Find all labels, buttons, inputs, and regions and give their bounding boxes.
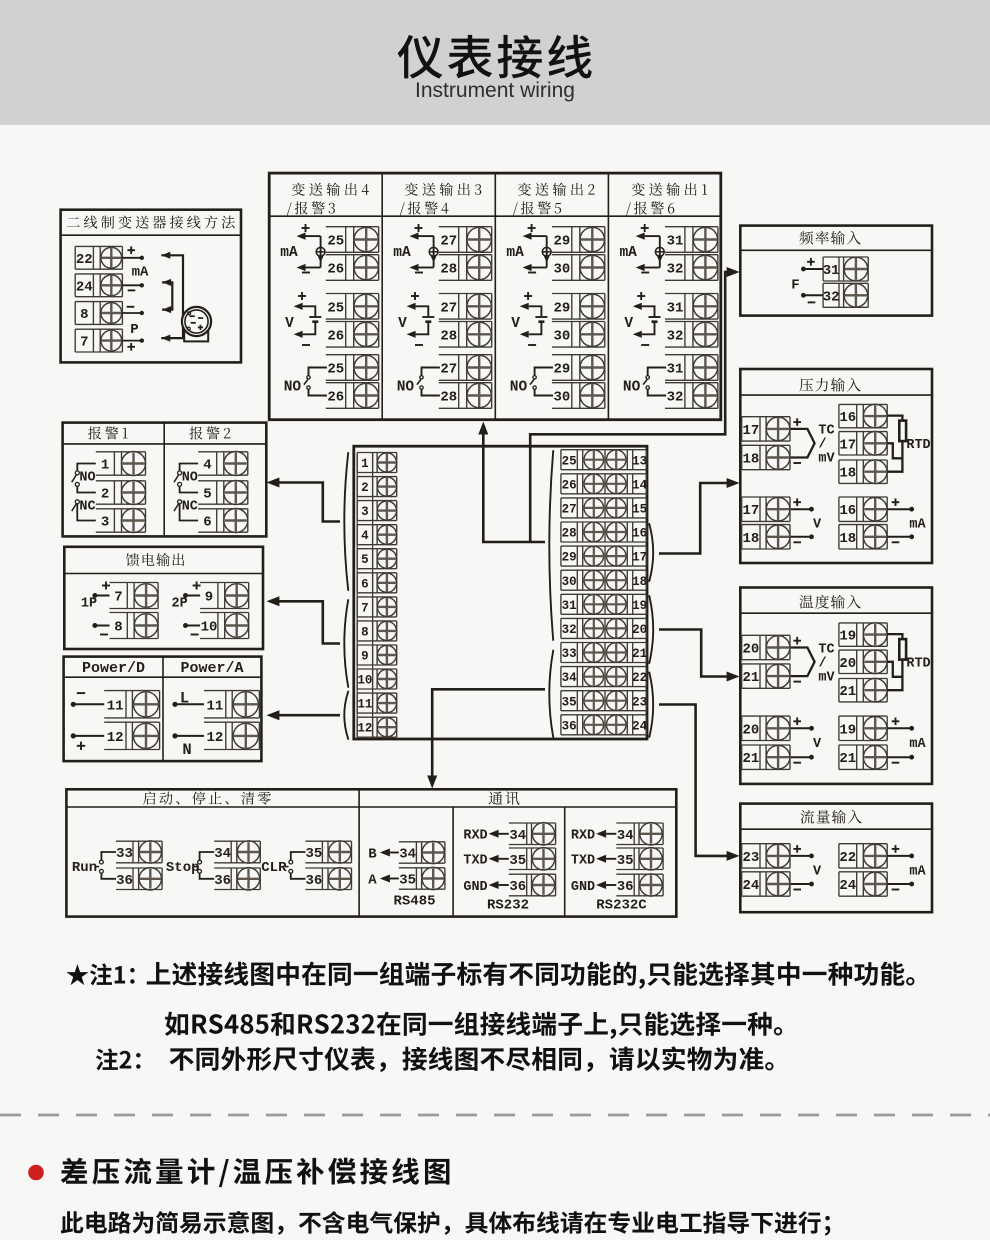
svg-text:26: 26 xyxy=(327,390,344,406)
svg-text:27: 27 xyxy=(440,300,457,316)
svg-text:15: 15 xyxy=(632,503,647,517)
svg-text:2: 2 xyxy=(361,481,369,495)
svg-text:26: 26 xyxy=(562,478,577,492)
svg-text:30: 30 xyxy=(553,328,570,344)
svg-text:Stop: Stop xyxy=(166,860,200,876)
svg-text:30: 30 xyxy=(553,390,570,406)
svg-text:21: 21 xyxy=(632,647,647,661)
svg-text:B: B xyxy=(368,847,377,863)
svg-text:Instrument wiring: Instrument wiring xyxy=(415,79,575,102)
svg-text:35: 35 xyxy=(509,853,526,869)
svg-text:19: 19 xyxy=(632,599,647,613)
svg-text:mV: mV xyxy=(818,452,835,467)
svg-text:2P: 2P xyxy=(171,597,187,612)
svg-text:V: V xyxy=(511,316,520,332)
svg-text:32: 32 xyxy=(562,623,577,637)
svg-text:27: 27 xyxy=(562,503,577,517)
svg-text:29: 29 xyxy=(553,300,570,316)
svg-text:32: 32 xyxy=(667,328,684,344)
svg-text:20: 20 xyxy=(742,722,759,738)
svg-text:23: 23 xyxy=(632,695,647,709)
svg-text:17: 17 xyxy=(742,423,759,439)
svg-text:CLR: CLR xyxy=(261,860,287,876)
svg-text:7: 7 xyxy=(114,590,122,606)
svg-text:35: 35 xyxy=(399,873,416,889)
svg-text:32: 32 xyxy=(667,390,684,406)
svg-text:TXD: TXD xyxy=(571,854,595,869)
svg-text:34: 34 xyxy=(509,828,526,844)
svg-text:19: 19 xyxy=(839,629,856,645)
svg-text:GND: GND xyxy=(463,880,487,895)
svg-text:21: 21 xyxy=(839,751,856,767)
svg-text:11: 11 xyxy=(107,698,124,714)
svg-text:34: 34 xyxy=(399,847,416,863)
svg-text:31: 31 xyxy=(667,234,684,250)
svg-text:22: 22 xyxy=(76,252,93,268)
svg-text:RS232C: RS232C xyxy=(596,898,647,914)
svg-text:18: 18 xyxy=(742,531,759,547)
svg-text:mA: mA xyxy=(506,245,524,261)
svg-text:NO: NO xyxy=(623,380,641,396)
svg-text:8: 8 xyxy=(114,620,122,636)
svg-text:31: 31 xyxy=(823,263,840,279)
svg-text:23: 23 xyxy=(742,850,759,866)
svg-text:20: 20 xyxy=(632,623,647,637)
svg-text:26: 26 xyxy=(327,262,344,278)
svg-text:TXD: TXD xyxy=(463,854,487,869)
svg-text:mA: mA xyxy=(619,245,637,261)
svg-text:32: 32 xyxy=(667,262,684,278)
svg-text:TC: TC xyxy=(818,642,834,657)
svg-text:12: 12 xyxy=(107,730,124,746)
svg-text:16: 16 xyxy=(839,410,856,426)
svg-text:NO: NO xyxy=(182,470,198,485)
svg-text:21: 21 xyxy=(742,670,759,686)
svg-text:3: 3 xyxy=(101,515,109,531)
svg-text:5: 5 xyxy=(203,487,211,503)
svg-text:Power/D: Power/D xyxy=(82,660,145,677)
svg-text:29: 29 xyxy=(553,362,570,378)
svg-text:/: / xyxy=(818,656,826,671)
svg-text:mA: mA xyxy=(909,737,926,752)
svg-text:36: 36 xyxy=(305,873,322,889)
svg-text:mA: mA xyxy=(909,865,926,880)
svg-text:25: 25 xyxy=(327,362,344,378)
svg-text:27: 27 xyxy=(440,362,457,378)
svg-text:mA: mA xyxy=(132,265,149,281)
svg-text:mA: mA xyxy=(393,245,411,261)
svg-text:18: 18 xyxy=(839,466,856,482)
svg-text:9: 9 xyxy=(205,590,213,606)
svg-text:25: 25 xyxy=(327,300,344,316)
svg-text:24: 24 xyxy=(742,878,759,894)
svg-text:4: 4 xyxy=(203,458,211,474)
svg-text:NO: NO xyxy=(510,380,528,396)
svg-text:30: 30 xyxy=(553,262,570,278)
svg-text:NO: NO xyxy=(284,380,302,396)
svg-text:RS485: RS485 xyxy=(393,893,435,909)
svg-text:24: 24 xyxy=(632,719,648,733)
svg-text:20: 20 xyxy=(742,642,759,658)
svg-text:6: 6 xyxy=(361,577,369,591)
svg-text:29: 29 xyxy=(553,234,570,250)
svg-text:8: 8 xyxy=(80,307,88,323)
svg-text:V: V xyxy=(285,316,294,332)
svg-text:35: 35 xyxy=(617,853,634,869)
svg-text:2: 2 xyxy=(101,487,109,503)
svg-text:Run: Run xyxy=(72,860,97,876)
svg-text:13: 13 xyxy=(632,454,647,468)
svg-text:34: 34 xyxy=(617,828,634,844)
svg-text:31: 31 xyxy=(667,300,684,316)
svg-text:34: 34 xyxy=(562,671,578,685)
svg-text:31: 31 xyxy=(667,362,684,378)
svg-text:1P: 1P xyxy=(81,597,97,612)
svg-text:20: 20 xyxy=(839,656,856,672)
svg-text:GND: GND xyxy=(571,880,595,895)
svg-text:28: 28 xyxy=(440,390,457,406)
svg-text:NC: NC xyxy=(182,499,198,514)
svg-text:28: 28 xyxy=(440,328,457,344)
svg-text:Power/A: Power/A xyxy=(180,660,243,677)
svg-text:11: 11 xyxy=(206,698,223,714)
svg-text:V: V xyxy=(624,316,633,332)
svg-text:4: 4 xyxy=(361,529,369,543)
svg-text:RXD: RXD xyxy=(571,829,595,844)
svg-text:V: V xyxy=(813,865,822,880)
svg-text:34: 34 xyxy=(214,846,231,862)
svg-text:32: 32 xyxy=(823,289,840,305)
svg-text:25: 25 xyxy=(327,234,344,250)
svg-text:6: 6 xyxy=(203,515,211,531)
svg-text:27: 27 xyxy=(440,234,457,250)
svg-text:33: 33 xyxy=(116,846,133,862)
svg-text:36: 36 xyxy=(617,879,634,895)
svg-text:19: 19 xyxy=(839,722,856,738)
svg-text:1: 1 xyxy=(101,458,109,474)
svg-text:18: 18 xyxy=(839,531,856,547)
svg-text:36: 36 xyxy=(214,873,231,889)
svg-text:7: 7 xyxy=(361,601,369,615)
svg-text:28: 28 xyxy=(440,262,457,278)
svg-text:N: N xyxy=(182,741,191,759)
svg-text:3: 3 xyxy=(361,505,369,519)
svg-text:21: 21 xyxy=(742,751,759,767)
svg-text:35: 35 xyxy=(562,695,577,709)
svg-text:33: 33 xyxy=(562,647,577,661)
svg-text:TC: TC xyxy=(818,424,834,439)
svg-text:30: 30 xyxy=(562,575,577,589)
svg-text:NO: NO xyxy=(397,380,415,396)
svg-text:NO: NO xyxy=(79,470,95,485)
svg-text:29: 29 xyxy=(562,551,577,565)
svg-text:17: 17 xyxy=(632,551,647,565)
svg-text:17: 17 xyxy=(839,437,856,453)
svg-text:V: V xyxy=(398,316,407,332)
svg-text:21: 21 xyxy=(839,684,856,700)
svg-text:V: V xyxy=(813,518,822,533)
svg-text:36: 36 xyxy=(509,879,526,895)
svg-text:12: 12 xyxy=(206,730,223,746)
svg-text:mV: mV xyxy=(818,670,835,685)
svg-text:28: 28 xyxy=(562,527,577,541)
svg-text:12: 12 xyxy=(357,722,372,736)
svg-text:36: 36 xyxy=(116,873,133,889)
svg-text:14: 14 xyxy=(632,478,648,492)
svg-text:7: 7 xyxy=(80,335,88,351)
svg-text:RXD: RXD xyxy=(463,829,487,844)
svg-text:10: 10 xyxy=(201,620,218,636)
svg-text:22: 22 xyxy=(839,850,856,866)
svg-text:26: 26 xyxy=(327,328,344,344)
svg-text:11: 11 xyxy=(357,698,372,712)
svg-text:9: 9 xyxy=(361,650,369,664)
svg-text:36: 36 xyxy=(562,719,577,733)
svg-text:RTD: RTD xyxy=(906,656,930,671)
svg-text:16: 16 xyxy=(632,527,647,541)
svg-text:P: P xyxy=(130,322,138,338)
svg-text:A: A xyxy=(368,873,377,889)
svg-text:5: 5 xyxy=(361,553,369,567)
svg-text:18: 18 xyxy=(632,575,647,589)
svg-text:25: 25 xyxy=(562,454,577,468)
svg-text:RTD: RTD xyxy=(906,438,930,453)
svg-text:35: 35 xyxy=(305,846,322,862)
svg-text:31: 31 xyxy=(562,599,577,613)
svg-text:22: 22 xyxy=(632,671,647,685)
svg-text:24: 24 xyxy=(839,878,856,894)
svg-text:17: 17 xyxy=(742,503,759,519)
svg-text:8: 8 xyxy=(361,625,369,639)
svg-text:RS232: RS232 xyxy=(487,898,529,914)
svg-text:V: V xyxy=(813,737,822,752)
svg-text:/: / xyxy=(818,438,826,453)
svg-text:24: 24 xyxy=(76,279,93,295)
svg-text:mA: mA xyxy=(280,245,298,261)
svg-text:16: 16 xyxy=(839,503,856,519)
svg-text:mA: mA xyxy=(909,518,926,533)
svg-text:10: 10 xyxy=(357,674,372,688)
svg-text:NC: NC xyxy=(79,499,95,514)
svg-text:F: F xyxy=(791,278,799,294)
svg-text:18: 18 xyxy=(742,452,759,468)
svg-text:1: 1 xyxy=(361,457,369,471)
